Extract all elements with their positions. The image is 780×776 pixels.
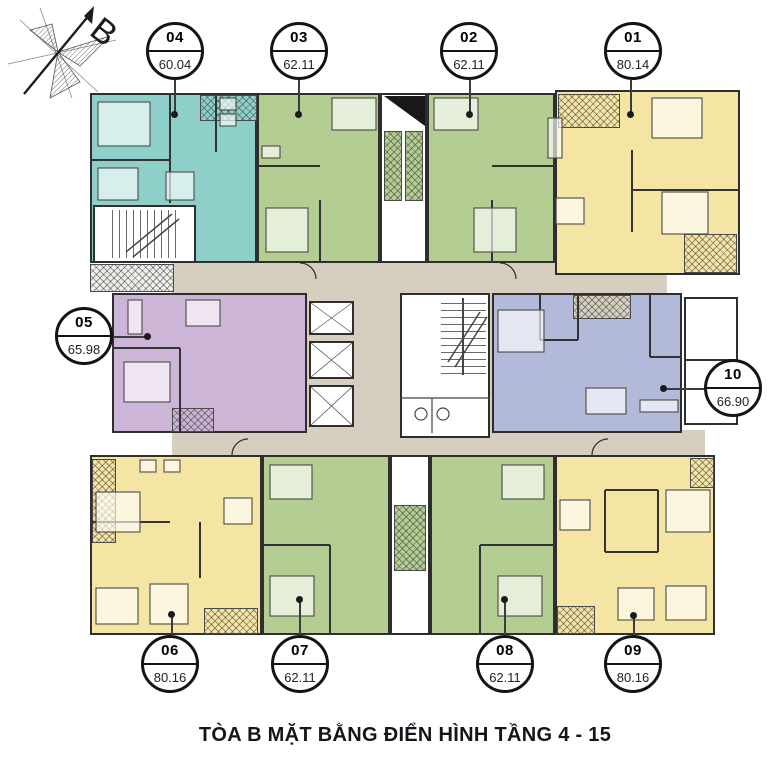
unit-tag-number: 09 [607,638,659,665]
unit-tag-04: 04 60.04 [146,22,204,80]
leader-dot [171,111,178,118]
unit-tag-number: 07 [274,638,326,665]
elevator-x-icon [311,387,352,425]
elevator-shaft [309,341,354,379]
unit-03 [257,93,380,263]
unit-02 [427,93,555,263]
unit-08 [430,455,555,635]
leader-line [504,599,506,635]
unit-tag-area: 80.16 [607,665,659,690]
leader-dot [144,333,151,340]
leader-dot [627,111,634,118]
leader-dot [295,111,302,118]
unit-tag-number: 05 [58,310,110,337]
leader-line [113,336,148,338]
leader-line [298,80,300,114]
shaft-hatch [405,131,423,201]
leader-dot [501,596,508,603]
balcony-hatch [92,459,116,543]
leader-dot [630,612,637,619]
balcony-hatch [204,608,258,634]
compass-north-icon: B [6,2,124,104]
elevator-x-icon [311,303,352,333]
shaft-hatch [384,131,402,201]
unit-tag-number: 03 [273,25,325,52]
unit-tag-area: 65.98 [58,337,110,362]
unit-tag-07: 07 62.11 [271,635,329,693]
unit-tag-01: 01 80.14 [604,22,662,80]
elevator-x-icon [311,343,352,377]
unit-tag-number: 08 [479,638,531,665]
leader-dot [168,611,175,618]
leader-line [174,80,176,114]
corridor-stub [660,430,705,458]
balcony-hatch [684,234,737,273]
shaft-hatch [394,505,426,571]
unit-tag-area: 80.16 [144,665,196,690]
balcony-hatch [557,606,595,634]
unit-tag-area: 62.11 [274,665,326,690]
leader-line [630,80,632,114]
elevator-shaft [309,301,354,335]
balcony-hatch [558,94,620,128]
unit-tag-05: 05 65.98 [55,307,113,365]
balcony-hatch [200,95,257,121]
unit-tag-number: 04 [149,25,201,52]
unit-tag-03: 03 62.11 [270,22,328,80]
balcony-hatch [90,264,174,292]
leader-dot [660,385,667,392]
plan-title: TÒA B MẶT BẰNG ĐIỂN HÌNH TẦNG 4 - 15 [30,724,780,747]
leader-line [469,80,471,114]
floor-plan: B [0,0,780,776]
elevator-shaft [309,385,354,427]
unit-tag-09: 09 80.16 [604,635,662,693]
stair-treads [441,298,486,374]
unit-tag-area: 66.90 [707,389,759,414]
unit-tag-area: 62.11 [273,52,325,77]
unit-tag-06: 06 80.16 [141,635,199,693]
unit-tag-number: 06 [144,638,196,665]
balcony-hatch [172,408,214,432]
stair-treads [112,210,182,258]
unit-tag-number: 10 [707,362,759,389]
leader-line [663,388,704,390]
unit-tag-area: 60.04 [149,52,201,77]
unit-tag-number: 02 [443,25,495,52]
unit-07 [262,455,390,635]
unit-tag-area: 62.11 [479,665,531,690]
unit-tag-10: 10 66.90 [704,359,762,417]
unit-tag-area: 62.11 [443,52,495,77]
leader-line [299,599,301,635]
unit-tag-08: 08 62.11 [476,635,534,693]
duct-hatch [573,295,631,319]
balcony-hatch [690,458,714,488]
leader-dot [296,596,303,603]
unit-tag-02: 02 62.11 [440,22,498,80]
unit-tag-number: 01 [607,25,659,52]
leader-dot [466,111,473,118]
unit-tag-area: 80.14 [607,52,659,77]
